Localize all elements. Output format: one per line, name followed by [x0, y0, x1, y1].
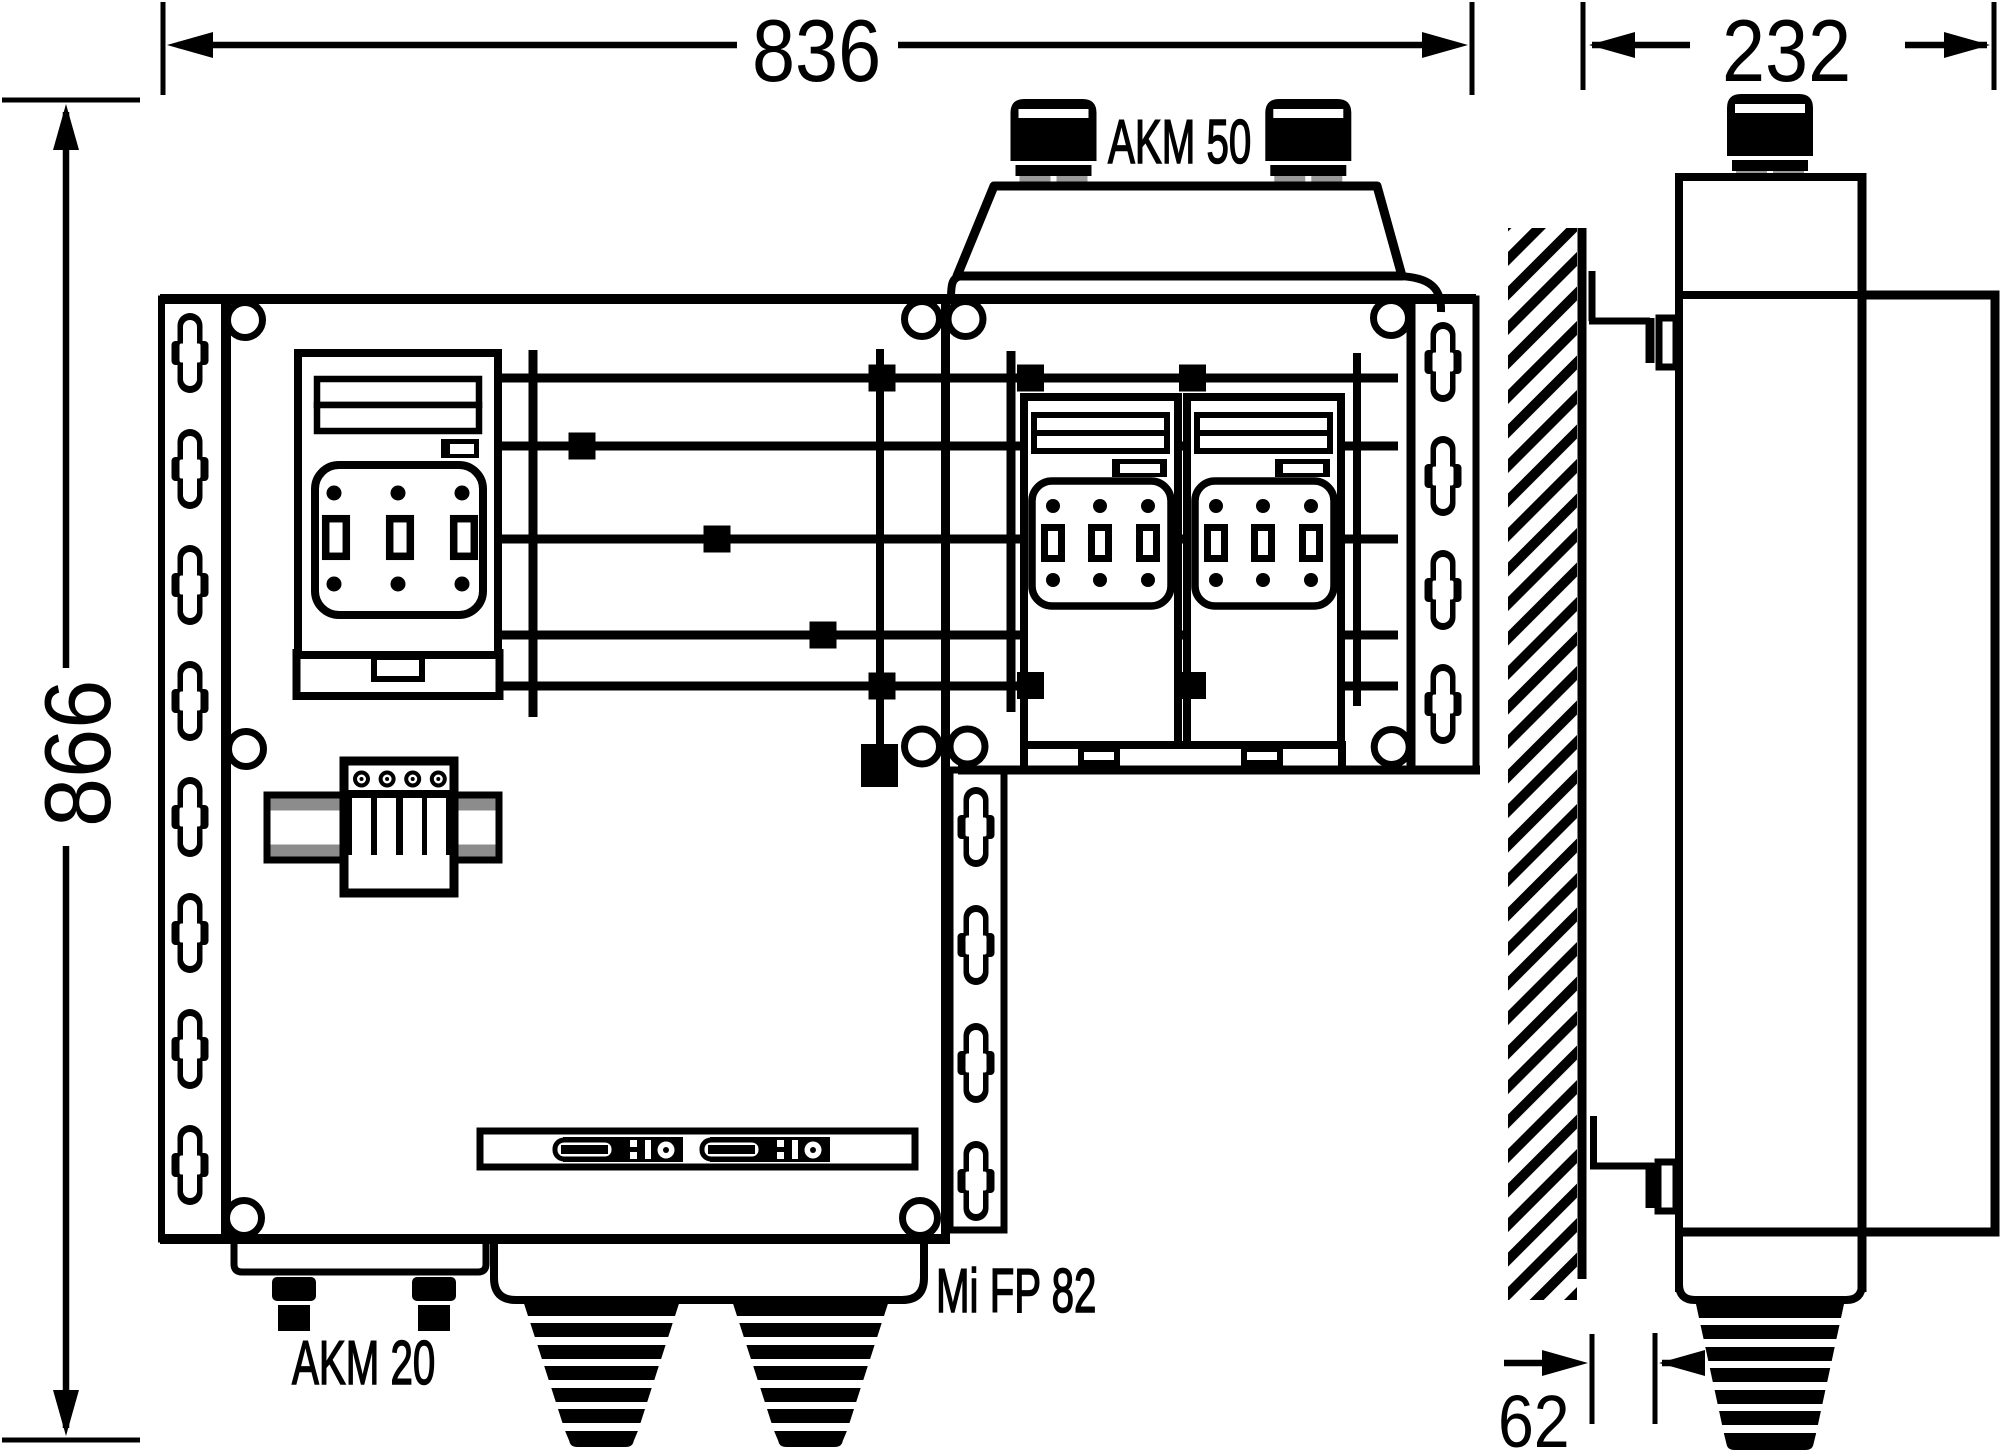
svg-text:AKM 20: AKM 20 — [292, 1329, 435, 1398]
svg-text:866: 866 — [26, 680, 131, 827]
svg-text:836: 836 — [752, 1, 881, 100]
svg-text:AKM 50: AKM 50 — [1108, 108, 1251, 177]
svg-text:Mi FP 82: Mi FP 82 — [936, 1257, 1096, 1326]
svg-text:62: 62 — [1498, 1380, 1570, 1450]
svg-text:232: 232 — [1722, 1, 1851, 100]
